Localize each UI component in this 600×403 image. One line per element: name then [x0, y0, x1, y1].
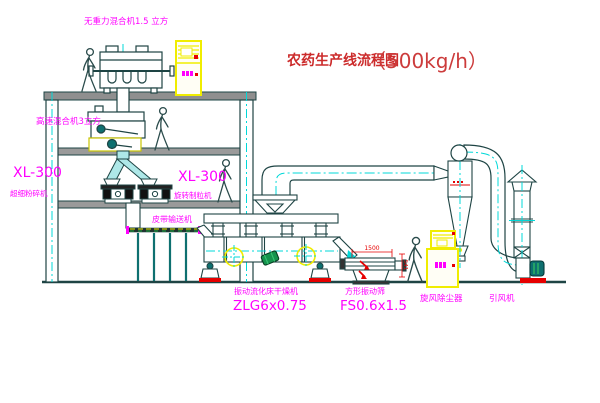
granulator-right [138, 179, 172, 203]
label-dryer-name: 振动流化床干燥机 [234, 286, 298, 296]
label-cyclone: 旋风除尘器 [420, 293, 463, 304]
label-fan: 引风机 [489, 293, 515, 304]
dryer-hood-ports [211, 223, 328, 237]
label-granulator-model: XL-300 [178, 169, 227, 185]
cad-canvas: 农药生产线流程图 （500kg/h） 无重力混合机1.5 立方 高速混合机3立方… [0, 0, 600, 403]
high-speed-mixer [88, 106, 145, 151]
dim-sieve-outlet-height: 541 [402, 260, 408, 271]
label-sieve-model: FS0.6x1.5 [340, 298, 407, 314]
induced-draft-fan [516, 258, 546, 283]
dryer-stand-left [199, 263, 221, 282]
person-ground [408, 237, 423, 282]
label-sieve-name: 方形振动筛 [345, 286, 385, 296]
label-pulverizer-name: 超细粉碎机 [10, 188, 48, 198]
title-capacity: （500kg/h） [366, 49, 488, 73]
exhaust-duct [262, 166, 434, 196]
dryer-stand-right [309, 263, 331, 282]
diagram-title: 农药生产线流程图 （500kg/h） [286, 49, 488, 73]
granulator-left [101, 179, 135, 203]
person-floor2 [155, 108, 169, 150]
label-gravity-free-mixer: 无重力混合机1.5 立方 [84, 16, 168, 27]
granulator-discharge-chute [126, 203, 140, 228]
label-dryer-model: ZLG6x0.75 [233, 298, 307, 314]
label-granulator-name: 旋转制粒机 [174, 190, 212, 200]
label-high-speed-mixer: 高速混合机3立方 [36, 116, 101, 127]
gravity-free-mixer [89, 46, 174, 112]
control-cabinet-right [427, 231, 458, 287]
pesticide-production-line-diagram: 农药生产线流程图 （500kg/h） 无重力混合机1.5 立方 高速混合机3立方… [0, 0, 600, 403]
label-belt-conveyor: 皮带输送机 [152, 214, 192, 224]
label-pulverizer-model: XL-300 [13, 165, 62, 181]
dim-sieve-length: 1500 [364, 245, 379, 252]
control-cabinet-top [176, 41, 201, 95]
cyclone-top-outlet [451, 145, 467, 161]
